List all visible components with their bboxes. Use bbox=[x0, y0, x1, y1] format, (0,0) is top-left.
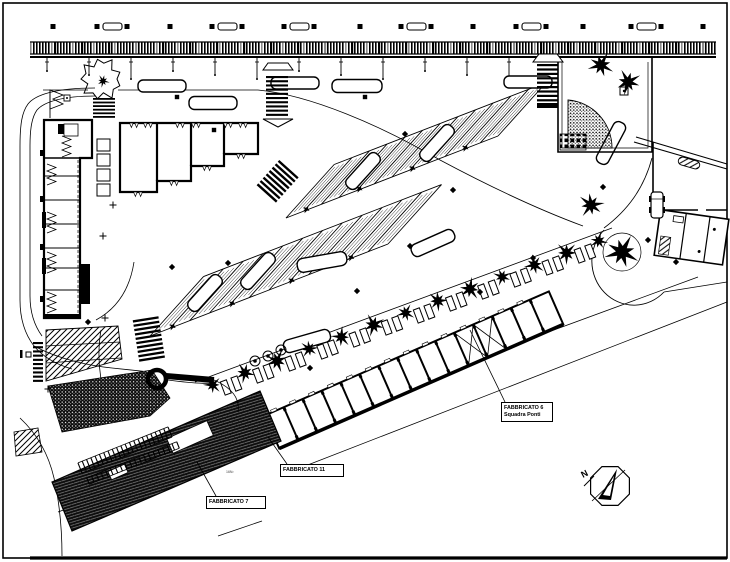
left-building-complex bbox=[40, 90, 110, 318]
parking-band-upper bbox=[286, 82, 546, 218]
label-f11: FABBRICATO 11 bbox=[280, 464, 344, 477]
right-side-buildings bbox=[634, 137, 729, 265]
tree-cloud bbox=[81, 59, 120, 98]
compass-north-letter: N bbox=[579, 468, 589, 480]
north-compass: N bbox=[579, 467, 629, 506]
label-f7-text: FABBRICATO 7 bbox=[209, 499, 248, 505]
label-f7: FABBRICATO 7 bbox=[206, 496, 266, 509]
central-stepped-building bbox=[120, 123, 258, 197]
label-f6-line2: Squadra Ponti bbox=[504, 412, 550, 419]
railway-track bbox=[30, 42, 716, 57]
site-plan-canvas: N bbox=[0, 0, 730, 562]
parked-car bbox=[649, 192, 665, 218]
label-f11-text: FABBRICATO 11 bbox=[283, 467, 325, 473]
label-f6-line1: FABBRICATO 6 bbox=[504, 405, 550, 412]
platform-furniture bbox=[51, 23, 706, 30]
vegetation-areas bbox=[48, 370, 170, 432]
cad-site-plan: N FABBRICATO 7 FABBRICATO 11 FABBRICATO … bbox=[0, 0, 730, 562]
area-note: 16N² bbox=[226, 470, 234, 474]
label-f6: FABBRICATO 6 Squadra Ponti bbox=[501, 402, 553, 422]
